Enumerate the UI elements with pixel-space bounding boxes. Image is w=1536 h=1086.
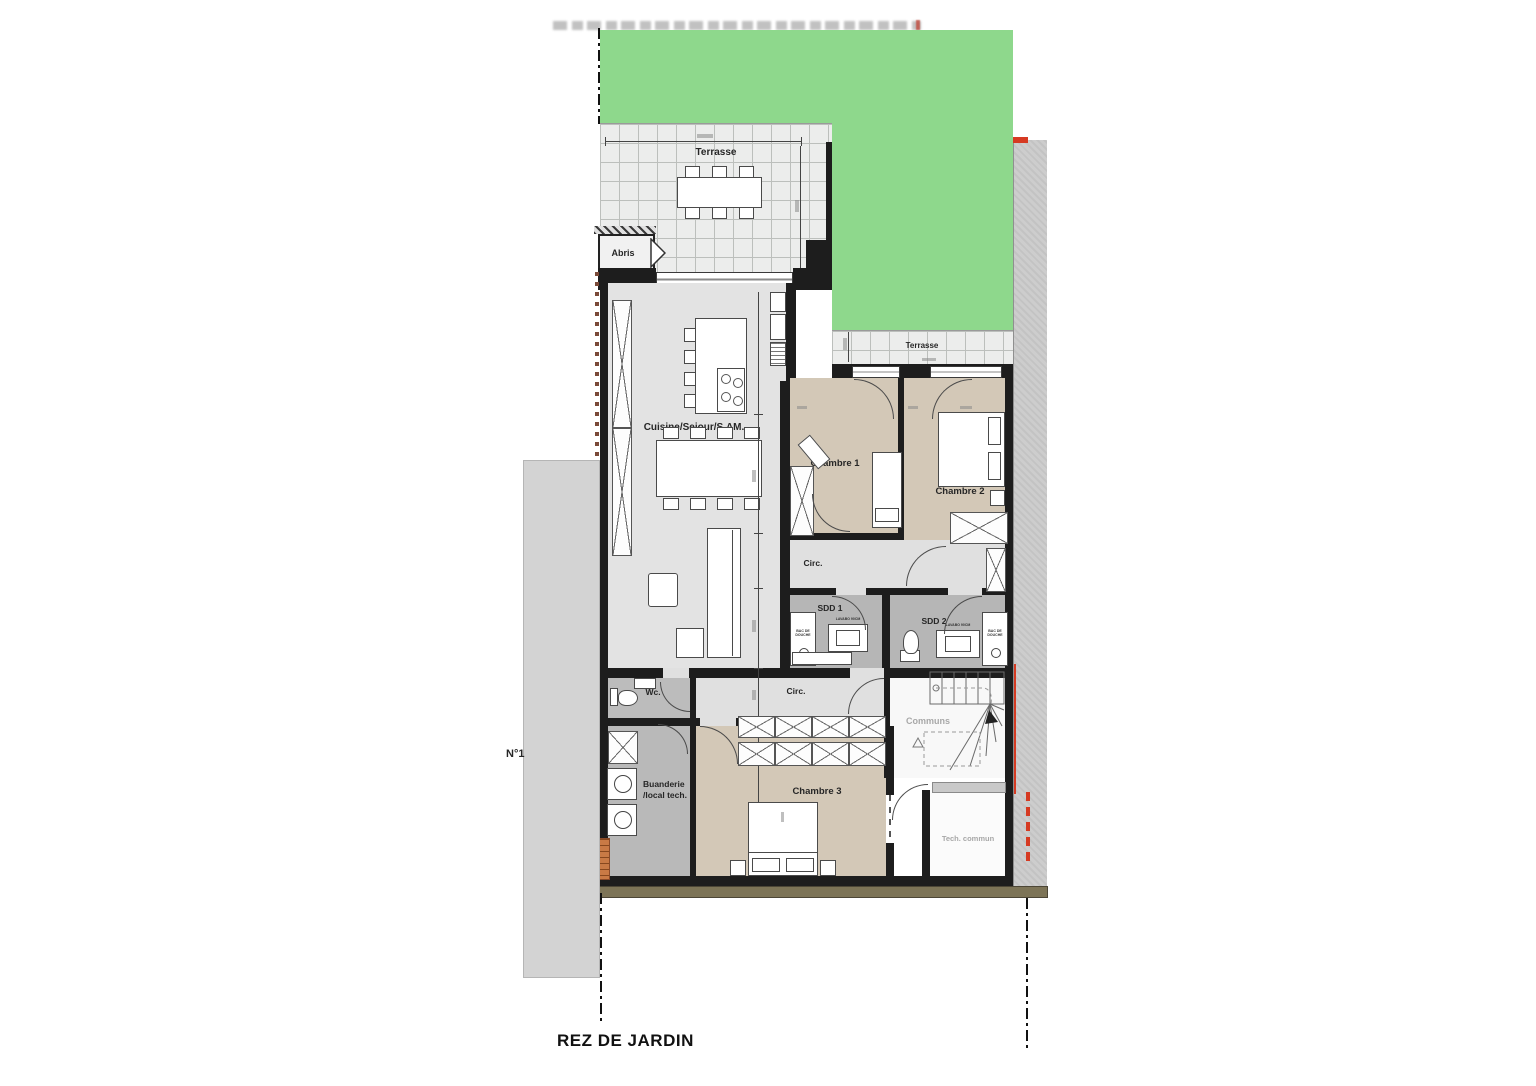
dining-chair: [717, 498, 733, 510]
terrasse-main-label: Terrasse: [600, 147, 832, 159]
abris-door-leaf: [650, 238, 666, 268]
abris-hatched-wall: [594, 226, 656, 234]
bar-stool: [684, 328, 696, 342]
tech-commun-label: Tech. commun: [928, 835, 1008, 844]
garden-left: [600, 30, 1013, 123]
chambre2-pillow: [988, 452, 1001, 480]
chambre2-wardrobe-v: [986, 548, 1006, 592]
wall-sdd1-sdd2: [882, 595, 890, 668]
chambre1-pillow: [875, 508, 899, 522]
wall-living-corridor: [780, 381, 790, 668]
property-line-bottom-right: [1026, 898, 1028, 1050]
chambre2-pillow: [988, 417, 1001, 445]
burner: [721, 392, 731, 402]
watermark-red-mark: [916, 20, 920, 30]
sofa-back-line: [732, 530, 733, 656]
unit-number-label: N°1: [506, 748, 546, 761]
red-line-right-interior: [1014, 664, 1016, 794]
closet-cell: [775, 742, 812, 766]
wall-buanderie-ch3: [690, 726, 696, 878]
sofa-ottoman: [676, 628, 704, 658]
living-wardrobe-upper: [612, 300, 632, 428]
dim-tick: [754, 414, 763, 415]
dim-tick: [605, 137, 606, 146]
staircase: [890, 670, 1006, 778]
sdd2-shower-label: BAC DE DOUCHE: [981, 630, 1009, 638]
dim-text-blur: [843, 338, 847, 350]
kitchen-appliance-grill: [770, 342, 786, 366]
dim-text-blur: [752, 470, 756, 482]
garden-right: [832, 123, 1013, 333]
dim-chain-v: [758, 292, 759, 876]
sdd1-sink: [836, 630, 860, 646]
dim-text-blur: [797, 406, 807, 409]
terrace-chair: [712, 207, 727, 219]
coffee-table: [648, 573, 678, 607]
chambre2-side-table: [990, 490, 1005, 506]
dim-tick: [754, 668, 763, 669]
cooktop: [717, 368, 745, 412]
terrace-chair: [685, 207, 700, 219]
property-line-top-left: [598, 28, 600, 124]
circ-upper-label: Circ.: [793, 559, 833, 569]
wc-toilet-tank: [610, 688, 618, 706]
living-wardrobe-lower: [612, 428, 632, 556]
foundation-band: [597, 886, 1048, 898]
watermark-text-blur: [553, 21, 921, 30]
sdd1-bench: [792, 652, 852, 665]
chambre3-closet-row-2: [738, 742, 886, 766]
dining-chair: [690, 498, 706, 510]
dim-text-blur: [752, 620, 756, 632]
chambre3-pillow: [786, 858, 814, 872]
terrasse-dimension-line-v: [800, 146, 801, 268]
dim-text-blur: [795, 200, 799, 212]
bar-stool: [684, 350, 696, 364]
dining-chair: [663, 427, 679, 439]
chambre3-bed-line: [749, 852, 817, 853]
abris-label: Abris: [598, 248, 648, 258]
dining-table: [656, 440, 762, 497]
bar-stool: [684, 372, 696, 386]
floor-plan: Terrasse Abris Terrasse: [0, 0, 1536, 1086]
burner: [721, 374, 731, 384]
chambre3-nightstand: [730, 860, 746, 876]
washing-machine-drum: [614, 811, 632, 829]
sdd2-door-gap: [948, 588, 982, 595]
bar-stool: [684, 394, 696, 408]
sdd2-shower-drain: [991, 648, 1001, 658]
dining-chair: [663, 498, 679, 510]
closet-cell: [738, 742, 775, 766]
kitchen-unit: [770, 292, 786, 312]
chambre1-wardrobe: [790, 466, 814, 536]
closet-cell: [738, 716, 775, 738]
neighbor-wall-strip: [1013, 140, 1047, 896]
terrasse-dimension-line-h: [606, 141, 802, 142]
buanderie-sink: [608, 731, 638, 764]
exterior-wall-top-b: [793, 268, 832, 290]
ch3-door-gap: [700, 718, 736, 726]
dim-tick: [754, 533, 763, 534]
tech-counter-band: [932, 782, 1006, 793]
ladder: [599, 838, 610, 880]
washing-machine-drum: [614, 775, 632, 793]
kitchen-unit: [770, 314, 786, 340]
burner: [733, 378, 743, 388]
tech-door-arc: [892, 784, 928, 820]
closet-cell: [775, 716, 812, 738]
dining-chair: [690, 427, 706, 439]
dim-tick: [801, 137, 802, 146]
terrasse-back-dim-v: [848, 332, 849, 362]
neighbor-wall-red-dashes: [1026, 792, 1030, 864]
dim-text-blur: [922, 358, 936, 361]
chambre2-window: [930, 366, 1002, 378]
circ-lower-label: Circ.: [776, 687, 816, 697]
plan-title: REZ DE JARDIN: [557, 1031, 817, 1051]
terrace-table: [677, 177, 762, 208]
closet-cell: [812, 742, 849, 766]
closet-cell: [849, 742, 886, 766]
chambre3-label: Chambre 3: [772, 787, 862, 798]
dim-text-blur: [697, 134, 713, 138]
sdd1-shower-label: BAC DE DOUCHE: [789, 630, 817, 638]
sdd1-door-gap: [836, 588, 866, 595]
wc-toilet-bowl: [618, 690, 638, 706]
sofa: [707, 528, 741, 658]
tech-commun-floor: [930, 790, 1005, 876]
wall-wc-bottom: [600, 718, 696, 726]
terrasse-back-label: Terrasse: [862, 341, 982, 350]
property-line-bottom-left: [600, 893, 602, 1023]
chambre3-closet-row-1: [738, 716, 886, 738]
neighbor-wall-red-cap: [1013, 137, 1028, 143]
closet-cell: [849, 716, 886, 738]
dim-tick: [754, 588, 763, 589]
chambre3-pillow: [752, 858, 780, 872]
circ-door-gap: [850, 668, 884, 678]
burner: [733, 396, 743, 406]
left-garden-strip: [523, 460, 600, 978]
dim-text-blur: [752, 690, 756, 700]
dim-text-blur: [908, 406, 918, 409]
closet-cell: [812, 716, 849, 738]
chambre2-wardrobe-h: [950, 512, 1008, 544]
buanderie-label-1: Buanderie: [643, 780, 703, 790]
wc-door-gap: [663, 668, 689, 678]
wall-wc-circ: [690, 678, 696, 718]
chambre1-window: [852, 366, 900, 378]
sdd2-sink: [945, 636, 971, 652]
buanderie-label-2: /local tech.: [643, 791, 703, 801]
dim-text-blur: [781, 812, 784, 822]
wc-sink: [634, 678, 656, 689]
chambre3-nightstand: [820, 860, 836, 876]
terrace-chair: [739, 207, 754, 219]
sdd2-toilet-bowl: [903, 630, 919, 654]
dining-chair: [717, 427, 733, 439]
wall-living-upper-right: [786, 283, 796, 381]
